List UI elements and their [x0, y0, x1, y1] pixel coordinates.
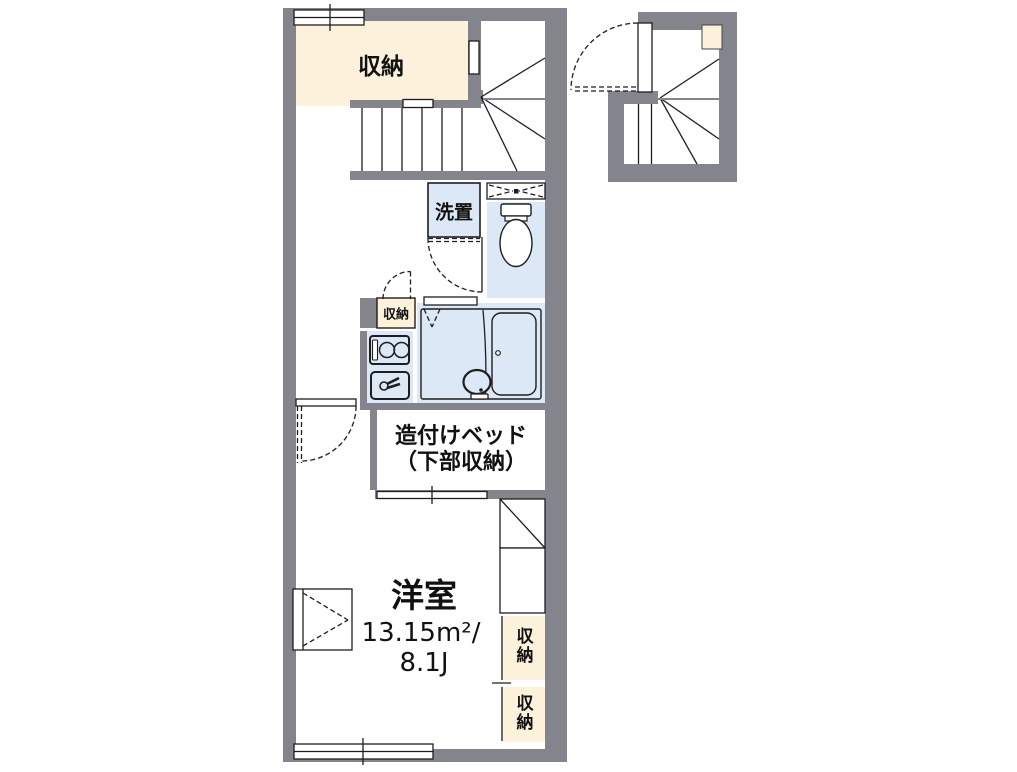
entry-storage-box	[702, 25, 722, 49]
hall-door	[296, 399, 356, 463]
entry-door-leaf	[638, 23, 652, 92]
hall-door-header	[296, 399, 356, 406]
storage-top-label: 収納	[358, 47, 404, 81]
bathroom	[417, 297, 545, 403]
bed-label: 造付けベッド （下部収納）	[395, 424, 527, 476]
floor-plan: 収納 洗置 収納 造付けベッド （下部収納） 洋室 13.15m²/ 8.1J …	[0, 0, 1017, 772]
stair-opening	[403, 100, 433, 108]
closet-upper-label: 収納	[515, 628, 535, 666]
stair-treads	[362, 108, 462, 171]
closet-lower-label: 収納	[515, 695, 535, 733]
entry-wall-left	[608, 91, 624, 182]
entry-wall-bottom	[608, 164, 737, 182]
room-area-label: 13.15m²/	[362, 618, 481, 648]
room-size-label: 8.1J	[399, 648, 448, 678]
bed-label-line1: 造付けベッド	[395, 424, 527, 450]
bed-left-wall	[370, 410, 377, 490]
toilet-vent-window	[487, 183, 545, 199]
storage-mid-wall	[360, 298, 377, 328]
kitchen-sink-icon	[371, 372, 409, 399]
right-alcove	[500, 548, 545, 613]
winder-hub	[468, 90, 483, 104]
wall-right	[545, 8, 567, 762]
floor-plan-drawing	[0, 0, 1017, 772]
bathtub-icon	[492, 313, 536, 395]
storage-mid-label: 収納	[383, 304, 409, 323]
washer-label: 洗置	[435, 198, 473, 225]
bathroom-door-header	[424, 297, 477, 305]
kitchen	[360, 331, 413, 405]
washroom-door-swing-icon	[428, 238, 482, 292]
room-name-label: 洋室	[391, 569, 457, 617]
kitchen-left-wall	[360, 331, 367, 405]
bed-label-line2: （下部収納）	[395, 450, 527, 476]
bed-top-wall	[360, 403, 545, 410]
closet-folding-icon	[293, 589, 352, 650]
winder-steps-icon	[481, 58, 545, 171]
mid-door-swing-icon	[383, 272, 411, 300]
toilet-icon	[500, 204, 532, 267]
entry-door-swing-icon	[571, 23, 638, 90]
stair-bottom-wall	[350, 171, 545, 180]
storage-top-door-opening	[469, 41, 479, 74]
hall-door-swing-icon	[301, 406, 356, 461]
kitchen-stove-icon	[370, 336, 409, 364]
entry-winder-hub	[608, 91, 658, 104]
entry-staircase	[571, 12, 737, 182]
